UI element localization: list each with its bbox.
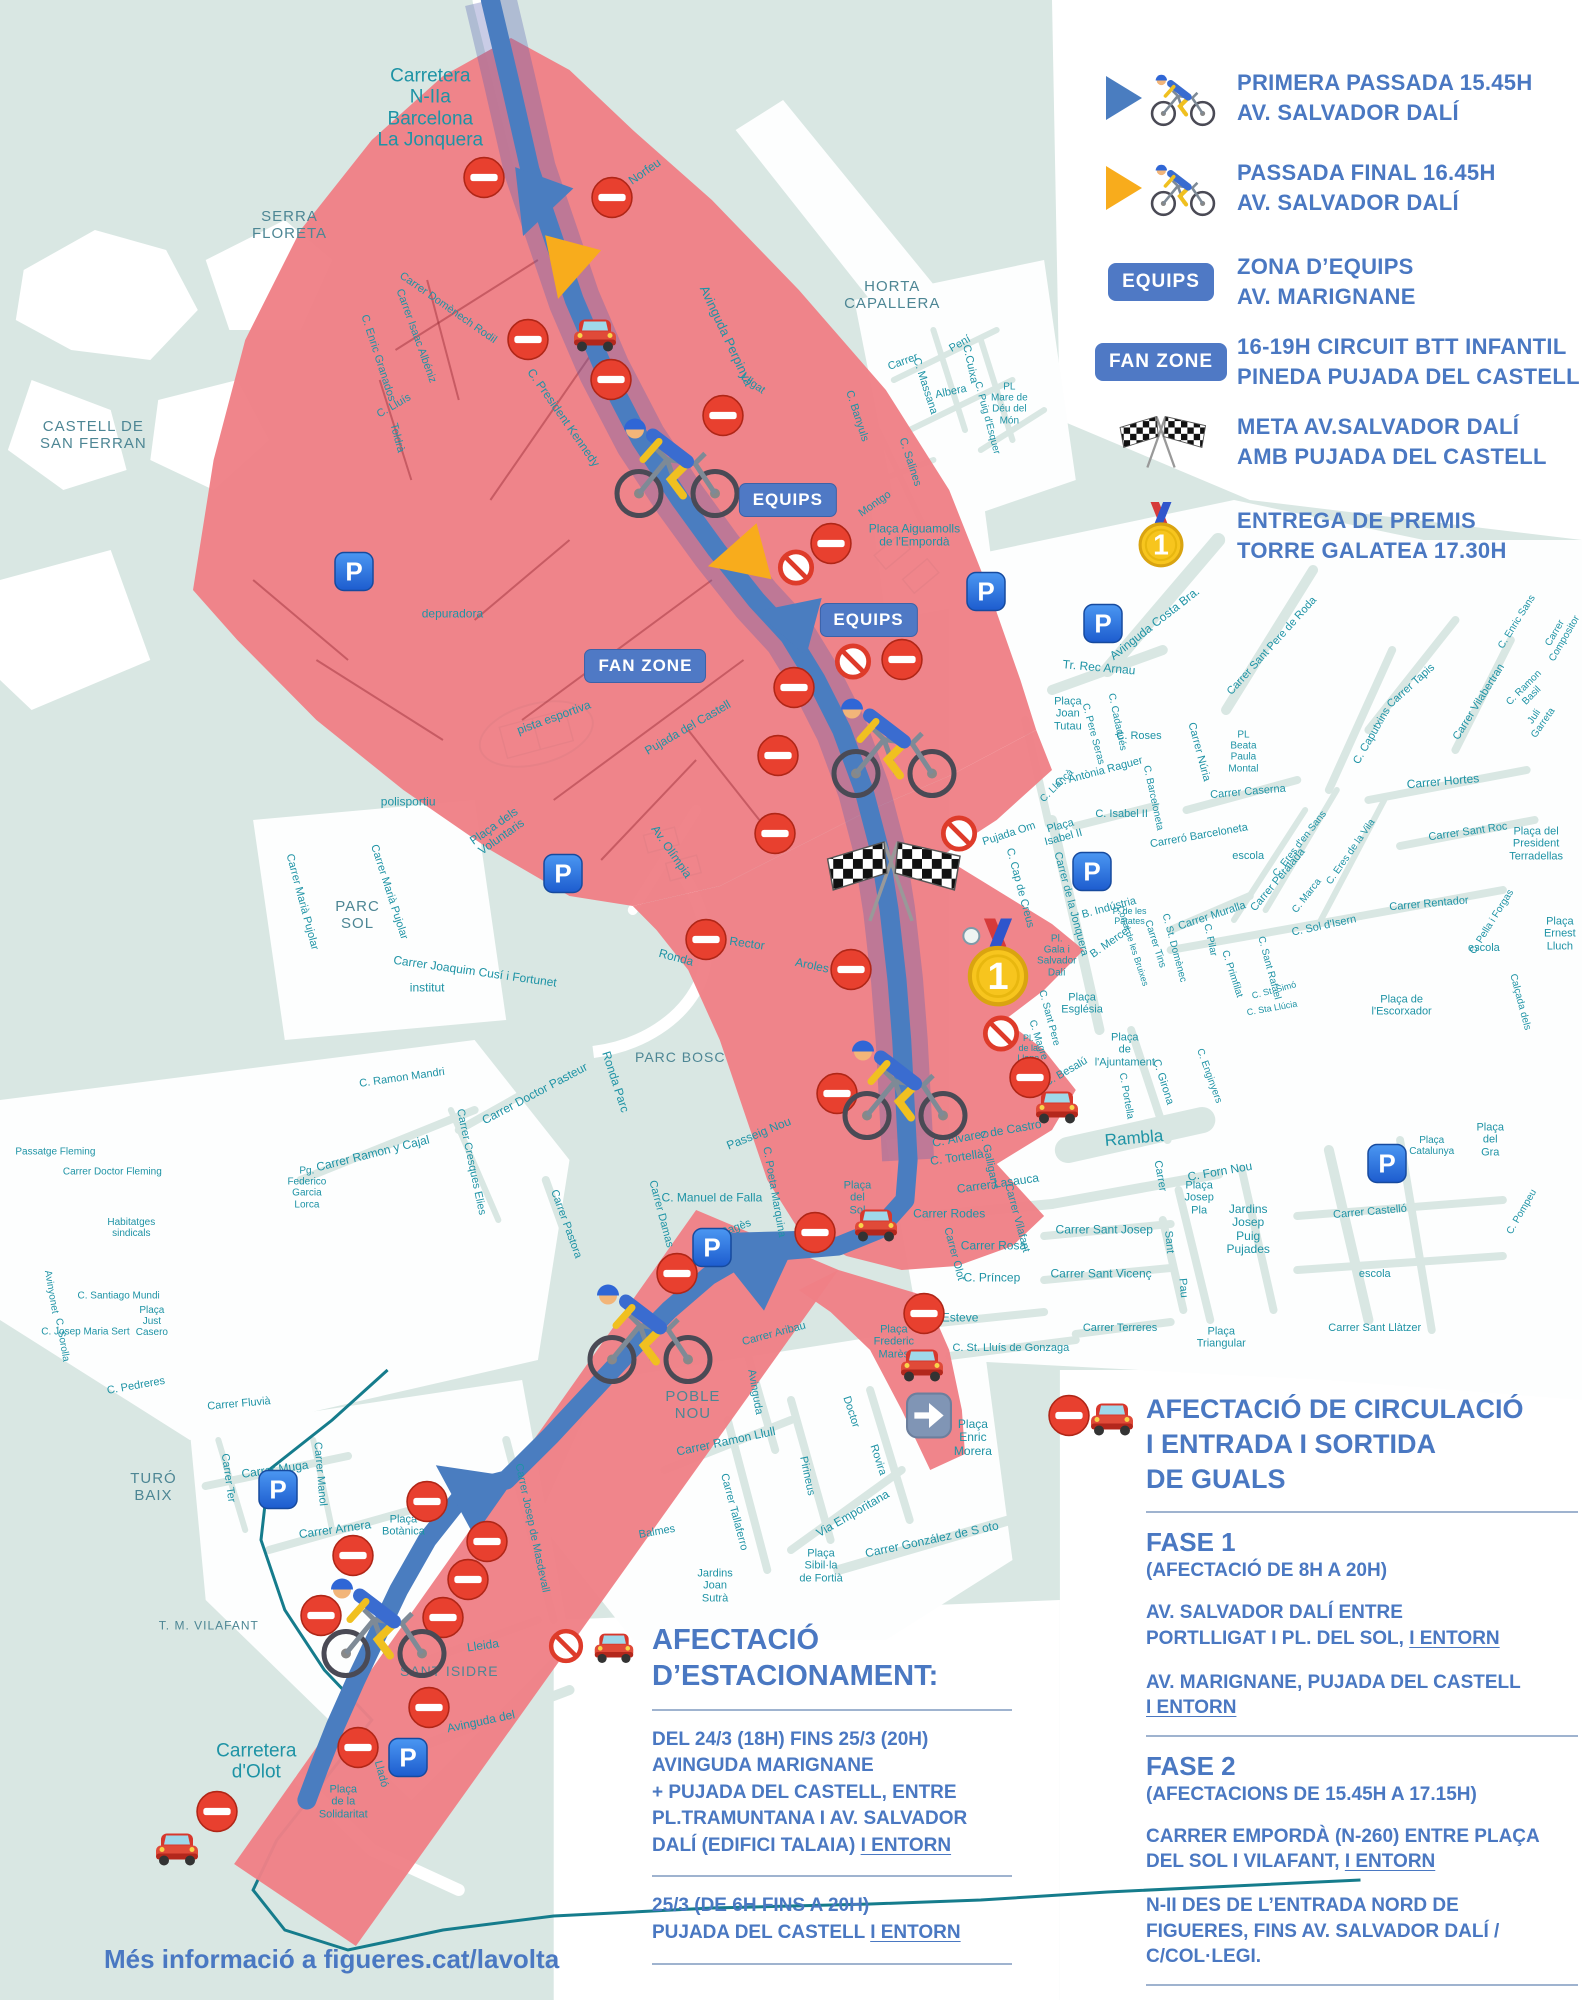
phase-subtitle: (AFECTACIONS DE 15.45H A 17.15H) xyxy=(1146,1784,1578,1806)
legend-item-label: META AV.SALVADOR DALÍAMB PUJADA DEL CAST… xyxy=(1237,412,1547,471)
divider xyxy=(652,1963,1012,1965)
route-direction-arrow-icon xyxy=(1106,76,1142,120)
divider xyxy=(1146,1984,1578,1986)
parking-panel: AFECTACIÓ D’ESTACIONAMENT: DEL 24/3 (18H… xyxy=(548,1622,1018,1979)
legend-item-label: ZONA D’EQUIPSAV. MARIGNANE xyxy=(1237,252,1416,311)
phase-section: FASE 2 (AFECTACIONS DE 15.45H A 17.15H)C… xyxy=(1146,1751,1578,1970)
legend-item-label: 16-19H CIRCUIT BTT INFANTILPINEDA PUJADA… xyxy=(1237,332,1580,391)
circulation-panel-title: AFECTACIÓ DE CIRCULACIÓ I ENTRADA I SORT… xyxy=(1146,1392,1578,1497)
phase-item: CARRER EMPORDÀ (N-260) ENTRE PLAÇA DEL S… xyxy=(1146,1824,1578,1875)
legend-item: PRIMERA PASSADA 15.45HAV. SALVADOR DALÍ xyxy=(1085,68,1533,127)
legend-item: FAN ZONE16-19H CIRCUIT BTT INFANTILPINED… xyxy=(1085,332,1580,391)
legend-item: PASSADA FINAL 16.45HAV. SALVADOR DALÍ xyxy=(1085,158,1496,217)
cyclist-icon xyxy=(1150,69,1216,127)
finish-flags-icon xyxy=(1111,414,1211,470)
divider xyxy=(1146,1735,1578,1737)
car-icon xyxy=(592,1628,636,1665)
parking-panel-title: AFECTACIÓ D’ESTACIONAMENT: xyxy=(652,1622,938,1695)
legend-item-label: ENTREGA DE PREMISTORRE GALATEA 17.30H xyxy=(1237,506,1507,565)
phase-subtitle: (AFECTACIÓ DE 8H A 20H) xyxy=(1146,1560,1578,1582)
circulation-panel: AFECTACIÓ DE CIRCULACIÓ I ENTRADA I SORT… xyxy=(1146,1392,1578,2000)
legend-item: META AV.SALVADOR DALÍAMB PUJADA DEL CAST… xyxy=(1085,412,1547,471)
legend-item: EQUIPSZONA D’EQUIPSAV. MARIGNANE xyxy=(1085,252,1416,311)
legend-badge: EQUIPS xyxy=(1108,263,1214,301)
parking-item: 25/3 (DE 6H FINS A 20H) PUJADA DEL CASTE… xyxy=(652,1893,1012,1946)
legend-badge: FAN ZONE xyxy=(1095,343,1227,381)
more-info-text: Més informació a figueres.cat/lavolta xyxy=(104,1944,559,1975)
phase-item: AV. SALVADOR DALÍ ENTRE PORTLLIGAT I PL.… xyxy=(1146,1600,1578,1651)
divider xyxy=(1146,1511,1578,1513)
legend-item: ENTREGA DE PREMISTORRE GALATEA 17.30H xyxy=(1085,502,1507,569)
no-parking-icon xyxy=(548,1628,584,1664)
legend-item-label: PASSADA FINAL 16.45HAV. SALVADOR DALÍ xyxy=(1237,158,1496,217)
phase-item: N-II DES DE L’ENTRADA NORD DE FIGUERES, … xyxy=(1146,1893,1578,1970)
phase-name: FASE 2 xyxy=(1146,1751,1578,1782)
divider xyxy=(652,1709,1012,1711)
route-direction-arrow-icon xyxy=(1106,166,1142,210)
phase-section: FASE 1 (AFECTACIÓ DE 8H A 20H)AV. SALVAD… xyxy=(1146,1527,1578,1721)
cyclist-icon xyxy=(1150,159,1216,217)
parking-item: DEL 24/3 (18H) FINS 25/3 (20H) AVINGUDA … xyxy=(652,1727,1012,1860)
event-map-poster: SERRA FLORETACASTELL DE SAN FERRANHORTA … xyxy=(0,0,1582,2000)
phase-item: AV. MARIGNANE, PUJADA DEL CASTELL I ENTO… xyxy=(1146,1670,1578,1721)
phase-name: FASE 1 xyxy=(1146,1527,1578,1558)
divider xyxy=(652,1875,1012,1877)
first-place-medal-icon xyxy=(1138,502,1184,569)
legend-item-label: PRIMERA PASSADA 15.45HAV. SALVADOR DALÍ xyxy=(1237,68,1533,127)
